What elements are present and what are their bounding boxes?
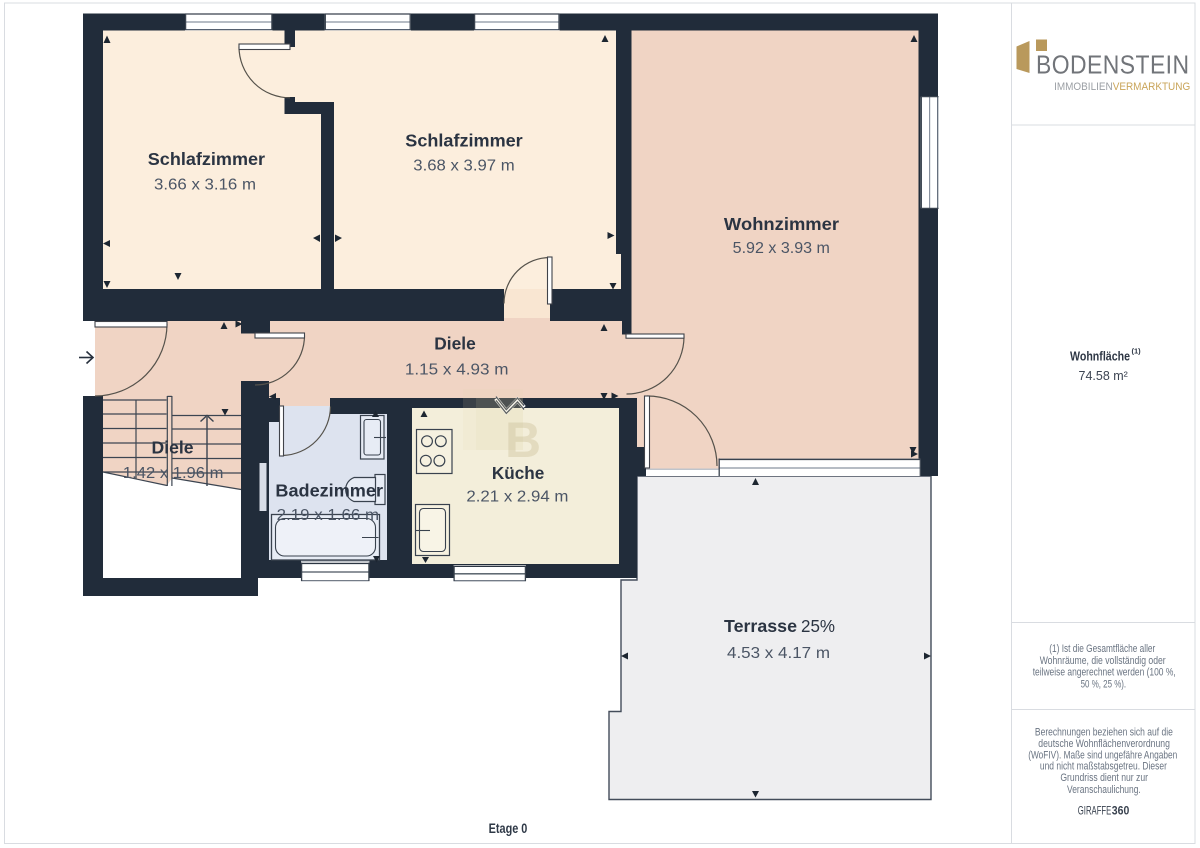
svg-text:Veranschaulichung.: Veranschaulichung. [1067, 784, 1141, 796]
svg-text:Schlafzimmer: Schlafzimmer [148, 149, 265, 169]
svg-text:(1): (1) [1132, 347, 1142, 356]
svg-text:Badezimmer: Badezimmer [275, 481, 383, 501]
svg-text:und nicht maßstabsgetreu. Dies: und nicht maßstabsgetreu. Dieser [1040, 761, 1167, 773]
svg-text:5.92 x 3.93 m: 5.92 x 3.93 m [733, 240, 830, 257]
svg-text:Wohnräume, die vollständig ode: Wohnräume, die vollständig oder [1040, 655, 1166, 667]
svg-text:VERMARKTUNG: VERMARKTUNG [1113, 81, 1191, 93]
svg-text:4.53 x 4.17 m: 4.53 x 4.17 m [727, 645, 830, 662]
svg-text:(1) Ist die Gesamtfläche aller: (1) Ist die Gesamtfläche aller [1049, 643, 1155, 655]
svg-text:2.21 x 2.94 m: 2.21 x 2.94 m [466, 489, 568, 506]
svg-text:74.58 m²: 74.58 m² [1079, 369, 1128, 383]
svg-text:25%: 25% [801, 616, 835, 636]
svg-text:Wohnzimmer: Wohnzimmer [724, 214, 839, 234]
svg-text:Schlafzimmer: Schlafzimmer [405, 130, 523, 150]
svg-text:deutsche Wohnflächenverordnung: deutsche Wohnflächenverordnung [1038, 738, 1170, 750]
svg-text:3.68 x 3.97 m: 3.68 x 3.97 m [413, 157, 514, 174]
svg-text:IMMOBILIEN: IMMOBILIEN [1054, 81, 1113, 93]
svg-text:360: 360 [1112, 804, 1130, 818]
svg-text:1.42 x 1.96 m: 1.42 x 1.96 m [123, 465, 224, 482]
svg-text:3.66 x 3.16 m: 3.66 x 3.16 m [154, 177, 256, 194]
svg-text:Terrasse: Terrasse [724, 616, 797, 636]
svg-text:Diele: Diele [434, 334, 476, 354]
svg-text:Diele: Diele [152, 438, 194, 458]
svg-text:Etage 0: Etage 0 [489, 821, 528, 836]
svg-text:50 %, 25 %).: 50 %, 25 %). [1081, 679, 1127, 691]
svg-text:GIRAFFE: GIRAFFE [1078, 804, 1112, 818]
svg-text:1.15 x 4.93 m: 1.15 x 4.93 m [405, 362, 509, 379]
svg-text:teilweise angerechnet werden (: teilweise angerechnet werden (100 %, [1033, 666, 1176, 678]
svg-text:Berechnungen beziehen sich auf: Berechnungen beziehen sich auf die [1035, 726, 1173, 738]
svg-text:Wohnfläche: Wohnfläche [1070, 349, 1130, 364]
svg-text:Grundriss dient nur zur: Grundriss dient nur zur [1060, 772, 1148, 784]
svg-text:2.19 x 1.66 m: 2.19 x 1.66 m [277, 507, 379, 524]
svg-text:BODENSTEIN: BODENSTEIN [1036, 50, 1190, 80]
svg-text:B: B [505, 412, 541, 468]
svg-text:Küche: Küche [492, 463, 545, 483]
